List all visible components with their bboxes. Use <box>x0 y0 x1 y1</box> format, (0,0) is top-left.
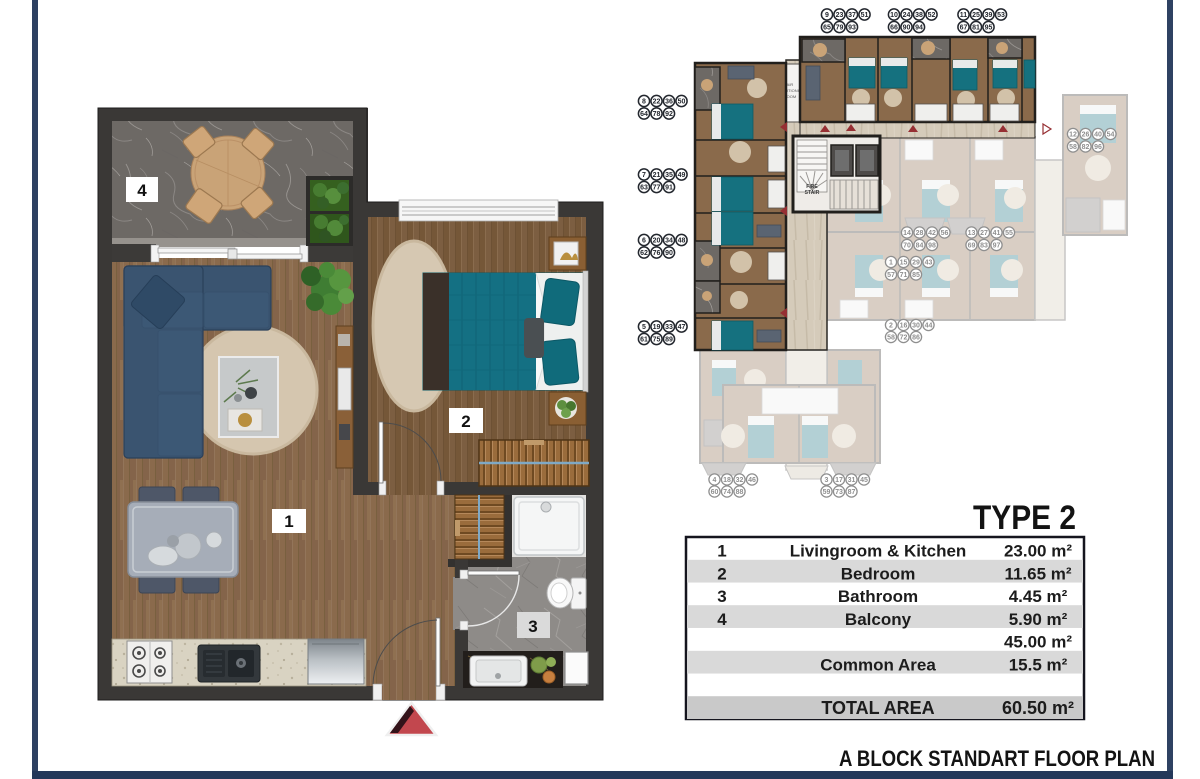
svg-text:54: 54 <box>1107 131 1115 138</box>
svg-text:TOTAL AREA: TOTAL AREA <box>821 698 934 718</box>
svg-text:39: 39 <box>985 12 993 19</box>
svg-text:22: 22 <box>653 98 661 105</box>
svg-text:92: 92 <box>665 111 673 118</box>
svg-text:42: 42 <box>928 230 936 237</box>
svg-text:29: 29 <box>912 259 920 266</box>
svg-text:83: 83 <box>980 242 988 249</box>
svg-text:3: 3 <box>717 587 726 606</box>
svg-text:15.5 m²: 15.5 m² <box>1009 655 1068 674</box>
svg-text:95: 95 <box>985 24 993 31</box>
svg-text:45: 45 <box>860 477 868 484</box>
svg-text:98: 98 <box>928 242 936 249</box>
svg-text:90: 90 <box>665 250 673 257</box>
svg-text:72: 72 <box>900 334 908 341</box>
svg-text:43: 43 <box>925 259 933 266</box>
svg-text:49: 49 <box>678 172 686 179</box>
svg-text:6: 6 <box>642 237 646 244</box>
svg-text:46: 46 <box>748 477 756 484</box>
svg-text:4: 4 <box>713 477 717 484</box>
svg-text:84: 84 <box>916 242 924 249</box>
svg-text:15: 15 <box>900 259 908 266</box>
svg-text:57: 57 <box>887 272 895 279</box>
svg-text:81: 81 <box>972 24 980 31</box>
svg-text:55: 55 <box>1005 230 1013 237</box>
svg-text:1: 1 <box>889 259 893 266</box>
svg-text:2: 2 <box>717 564 726 583</box>
svg-text:90: 90 <box>903 24 911 31</box>
svg-text:5.90 m²: 5.90 m² <box>1009 610 1068 629</box>
svg-text:1: 1 <box>284 512 293 531</box>
svg-text:71: 71 <box>900 272 908 279</box>
svg-text:18: 18 <box>723 477 731 484</box>
svg-text:64: 64 <box>640 111 648 118</box>
svg-text:48: 48 <box>678 237 686 244</box>
svg-text:2: 2 <box>461 412 470 431</box>
svg-text:40: 40 <box>1094 131 1102 138</box>
svg-text:58: 58 <box>887 334 895 341</box>
svg-text:23: 23 <box>836 12 844 19</box>
svg-text:21: 21 <box>653 172 661 179</box>
svg-text:60: 60 <box>711 489 719 496</box>
svg-text:12: 12 <box>1069 131 1077 138</box>
svg-text:74: 74 <box>723 489 731 496</box>
svg-text:STAIR: STAIR <box>805 190 820 196</box>
svg-text:19: 19 <box>653 324 661 331</box>
svg-text:35: 35 <box>665 172 673 179</box>
svg-text:87: 87 <box>848 489 856 496</box>
svg-text:85: 85 <box>912 272 920 279</box>
svg-text:16: 16 <box>900 322 908 329</box>
svg-text:13: 13 <box>968 230 976 237</box>
svg-text:47: 47 <box>678 324 686 331</box>
svg-text:28: 28 <box>916 230 924 237</box>
svg-text:75: 75 <box>653 336 661 343</box>
svg-text:78: 78 <box>653 111 661 118</box>
svg-text:31: 31 <box>848 477 856 484</box>
svg-text:34: 34 <box>665 237 673 244</box>
svg-text:63: 63 <box>640 184 648 191</box>
svg-text:4.45 m²: 4.45 m² <box>1009 587 1068 606</box>
svg-text:67: 67 <box>960 24 968 31</box>
svg-text:11.65 m²: 11.65 m² <box>1004 564 1071 583</box>
svg-text:4: 4 <box>717 610 727 629</box>
svg-text:23.00 m²: 23.00 m² <box>1004 542 1072 561</box>
svg-text:62: 62 <box>640 250 648 257</box>
svg-text:Livingroom & Kitchen: Livingroom & Kitchen <box>790 542 967 561</box>
svg-text:Balcony: Balcony <box>845 610 912 629</box>
svg-text:88: 88 <box>736 489 744 496</box>
svg-text:70: 70 <box>903 242 911 249</box>
svg-text:89: 89 <box>665 336 673 343</box>
svg-text:73: 73 <box>835 489 843 496</box>
svg-text:4: 4 <box>137 181 147 200</box>
svg-text:A BLOCK STANDART FLOOR PLAN: A BLOCK STANDART FLOOR PLAN <box>839 746 1155 771</box>
svg-text:37: 37 <box>848 12 856 19</box>
svg-text:97: 97 <box>993 242 1001 249</box>
svg-text:2: 2 <box>889 322 893 329</box>
svg-text:3: 3 <box>825 477 829 484</box>
svg-text:AIR: AIR <box>787 82 794 87</box>
svg-text:14: 14 <box>903 230 911 237</box>
svg-text:5: 5 <box>642 324 646 331</box>
svg-text:30: 30 <box>912 322 920 329</box>
svg-text:Bathroom: Bathroom <box>838 587 918 606</box>
svg-text:Common Area: Common Area <box>820 655 936 674</box>
svg-text:10: 10 <box>890 12 898 19</box>
svg-text:11: 11 <box>960 12 968 19</box>
svg-text:91: 91 <box>665 184 673 191</box>
svg-text:58: 58 <box>1069 144 1077 151</box>
svg-text:7: 7 <box>642 172 646 179</box>
svg-text:33: 33 <box>665 324 673 331</box>
svg-text:1: 1 <box>717 542 726 561</box>
svg-text:41: 41 <box>993 230 1001 237</box>
svg-text:79: 79 <box>836 24 844 31</box>
svg-text:Bedroom: Bedroom <box>841 564 916 583</box>
svg-text:66: 66 <box>890 24 898 31</box>
svg-text:17: 17 <box>835 477 843 484</box>
svg-text:76: 76 <box>653 250 661 257</box>
svg-text:53: 53 <box>997 12 1005 19</box>
svg-text:45.00 m²: 45.00 m² <box>1004 633 1072 652</box>
svg-text:25: 25 <box>972 12 980 19</box>
svg-text:24: 24 <box>903 12 911 19</box>
svg-text:94: 94 <box>915 24 923 31</box>
svg-text:20: 20 <box>653 237 661 244</box>
svg-text:3: 3 <box>528 617 537 636</box>
svg-text:60.50 m²: 60.50 m² <box>1002 698 1074 718</box>
svg-text:52: 52 <box>928 12 936 19</box>
svg-text:69: 69 <box>968 242 976 249</box>
svg-text:32: 32 <box>736 477 744 484</box>
svg-text:44: 44 <box>925 322 933 329</box>
svg-text:9: 9 <box>825 12 829 19</box>
svg-text:50: 50 <box>678 98 686 105</box>
svg-text:8: 8 <box>642 98 646 105</box>
svg-text:56: 56 <box>941 230 949 237</box>
svg-text:77: 77 <box>653 184 661 191</box>
svg-text:27: 27 <box>980 230 988 237</box>
svg-text:36: 36 <box>665 98 673 105</box>
svg-text:61: 61 <box>640 336 648 343</box>
svg-text:65: 65 <box>823 24 831 31</box>
svg-text:51: 51 <box>861 12 869 19</box>
svg-text:86: 86 <box>912 334 920 341</box>
svg-text:59: 59 <box>823 489 831 496</box>
svg-text:26: 26 <box>1082 131 1090 138</box>
svg-text:96: 96 <box>1094 144 1102 151</box>
svg-text:82: 82 <box>1082 144 1090 151</box>
svg-text:TYPE 2: TYPE 2 <box>973 499 1076 537</box>
svg-text:38: 38 <box>915 12 923 19</box>
svg-text:93: 93 <box>848 24 856 31</box>
